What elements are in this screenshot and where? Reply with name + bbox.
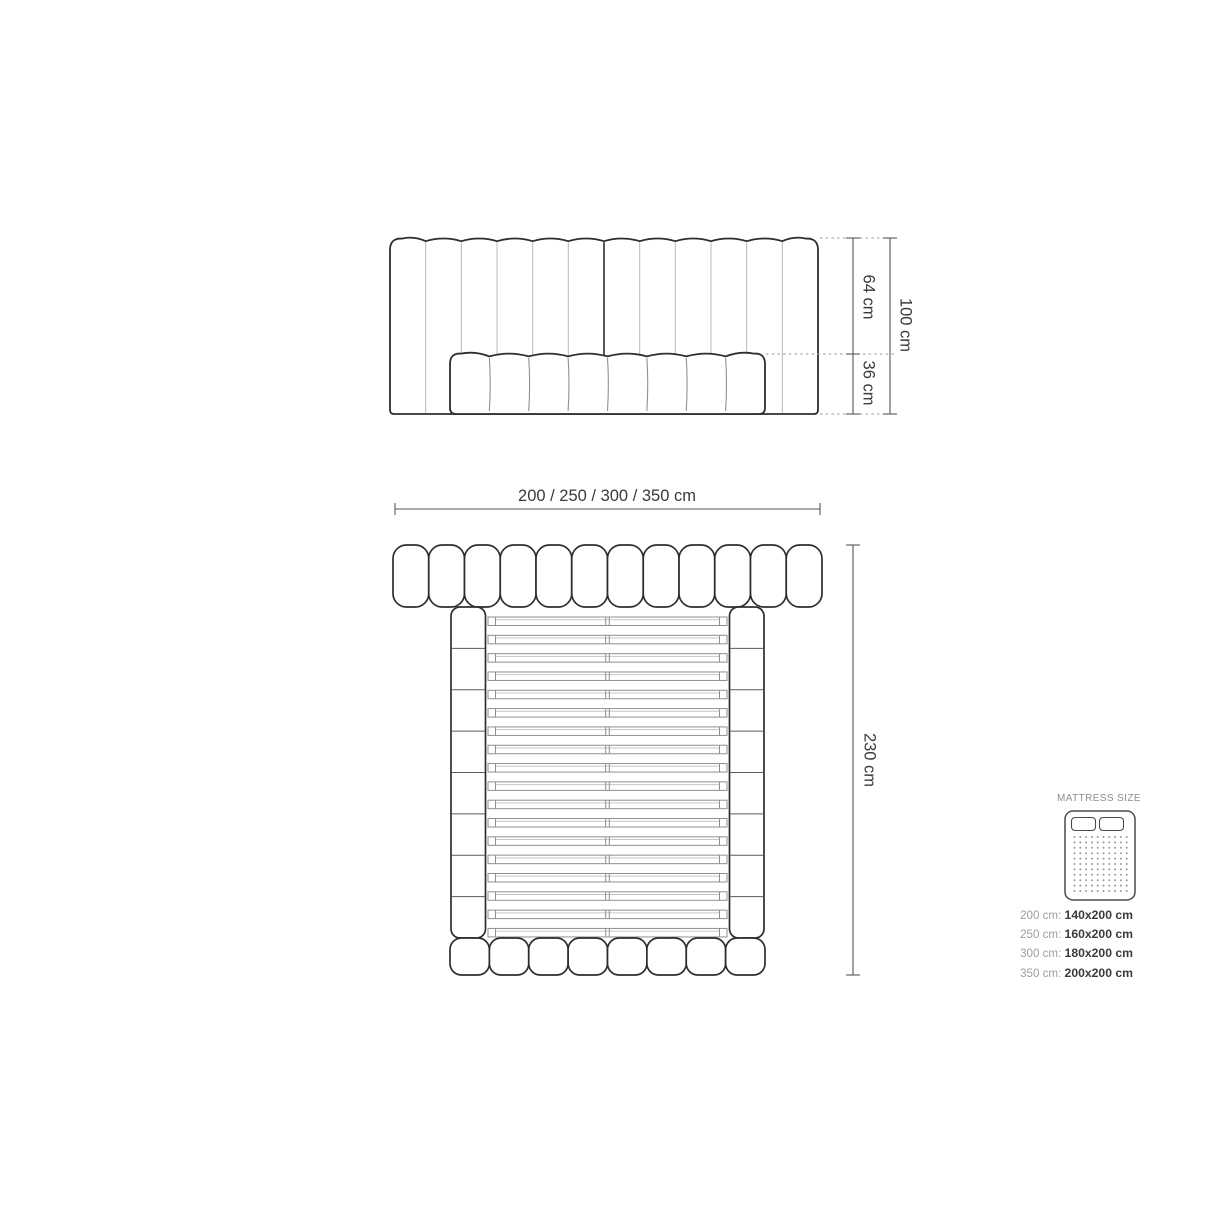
mattress-dot: [1103, 847, 1105, 849]
mattress-dot: [1074, 852, 1076, 854]
mattress-dot: [1091, 890, 1093, 892]
pillow-right: [1100, 818, 1124, 831]
slat: [488, 635, 727, 644]
mattress-dot: [1085, 868, 1087, 870]
mattress-dot: [1114, 836, 1116, 838]
mattress-dot: [1126, 863, 1128, 865]
slat: [488, 782, 727, 791]
footboard-pill: [726, 938, 765, 975]
footboard-pill: [568, 938, 607, 975]
mattress-dot: [1108, 847, 1110, 849]
mattress-dot: [1120, 841, 1122, 843]
mattress-dot: [1085, 852, 1087, 854]
headboard-pill: [465, 545, 501, 607]
mattress-dot: [1097, 841, 1099, 843]
mattress-dot: [1085, 858, 1087, 860]
bed-dimension-diagram: 64 cm 36 cm 100 cm 200 / 250 / 300 / 350…: [0, 0, 1214, 1214]
mattress-dot: [1114, 847, 1116, 849]
mattress-dot: [1097, 847, 1099, 849]
mattress-dot: [1074, 841, 1076, 843]
mattress-dot: [1108, 868, 1110, 870]
mattress-dot: [1074, 858, 1076, 860]
mattress-dot: [1074, 847, 1076, 849]
slat: [488, 727, 727, 736]
mattress-size-title: MATTRESS SIZE: [1038, 793, 1160, 804]
mattress-dot: [1079, 885, 1081, 887]
mattress-dot: [1079, 863, 1081, 865]
dim-label-width: 200 / 250 / 300 / 350 cm: [518, 487, 696, 505]
mattress-dot: [1074, 885, 1076, 887]
mattress-dot: [1074, 836, 1076, 838]
headboard-pill: [715, 545, 751, 607]
mattress-size-row: 350 cm: 200x200 cm: [1020, 964, 1133, 983]
mattress-dot: [1091, 858, 1093, 860]
mattress-dot: [1074, 868, 1076, 870]
headboard-plan: [393, 545, 822, 607]
mattress-dot: [1120, 836, 1122, 838]
mattress-dot: [1114, 863, 1116, 865]
mattress-dot: [1097, 879, 1099, 881]
mattress-dot: [1126, 868, 1128, 870]
mattress-dot: [1091, 868, 1093, 870]
mattress-dot: [1103, 868, 1105, 870]
mattress-dot: [1103, 863, 1105, 865]
mattress-dot: [1079, 836, 1081, 838]
mattress-dot: [1126, 841, 1128, 843]
front-view: 64 cm 36 cm 100 cm: [390, 238, 915, 414]
slat: [488, 819, 727, 828]
headboard-pill: [429, 545, 465, 607]
mattress-dot: [1126, 890, 1128, 892]
headboard-pill: [536, 545, 572, 607]
mattress-dot: [1097, 868, 1099, 870]
mattress-dot: [1103, 858, 1105, 860]
mattress-dot: [1085, 841, 1087, 843]
mattress-dot: [1085, 879, 1087, 881]
slat: [488, 690, 727, 699]
mattress-size-row: 300 cm: 180x200 cm: [1020, 944, 1133, 963]
slat: [488, 672, 727, 681]
mattress-size-row: 200 cm: 140x200 cm: [1020, 906, 1133, 925]
mattress-dot: [1108, 874, 1110, 876]
mattress-dot: [1091, 841, 1093, 843]
mattress-dot: [1079, 852, 1081, 854]
headboard-pill: [643, 545, 679, 607]
mattress-dot: [1114, 852, 1116, 854]
dim-label-64cm: 64 cm: [860, 275, 878, 320]
mattress-dot: [1103, 890, 1105, 892]
footboard-pill: [529, 938, 568, 975]
slat: [488, 837, 727, 846]
slat: [488, 764, 727, 773]
dim-label-100cm: 100 cm: [897, 298, 915, 352]
mattress-dot: [1108, 852, 1110, 854]
mattress-dot: [1114, 890, 1116, 892]
footboard-pill: [489, 938, 528, 975]
mattress-dot: [1120, 863, 1122, 865]
mattress-dot: [1079, 890, 1081, 892]
mattress-dot: [1074, 863, 1076, 865]
slats: [488, 617, 727, 937]
mattress-dot: [1114, 858, 1116, 860]
headboard-pill: [500, 545, 536, 607]
mattress-dot: [1074, 890, 1076, 892]
slat: [488, 928, 727, 937]
footboard-plan: [450, 938, 765, 975]
mattress-dot: [1097, 858, 1099, 860]
mattress-dot: [1126, 874, 1128, 876]
mattress-dot: [1108, 863, 1110, 865]
slat: [488, 892, 727, 901]
mattress-dot: [1126, 879, 1128, 881]
frame-width-label: 350 cm:: [1020, 967, 1061, 980]
mattress-dot: [1120, 868, 1122, 870]
top-view: 200 / 250 / 300 / 350 cm 230 cm: [393, 487, 879, 975]
mattress-size-value: 180x200 cm: [1065, 946, 1133, 960]
mattress-dot: [1085, 847, 1087, 849]
mattress-dot: [1126, 858, 1128, 860]
mattress-size-value: 160x200 cm: [1065, 927, 1133, 941]
headboard-pill: [786, 545, 822, 607]
mattress-dot: [1114, 868, 1116, 870]
headboard-pill: [572, 545, 608, 607]
mattress-dot: [1114, 841, 1116, 843]
mattress-dot: [1097, 852, 1099, 854]
mattress-dot: [1097, 863, 1099, 865]
mattress-dot: [1114, 874, 1116, 876]
footboard-pill: [686, 938, 725, 975]
mattress-dot: [1126, 852, 1128, 854]
frame-width-label: 200 cm:: [1020, 909, 1061, 922]
slat: [488, 617, 727, 626]
mattress-dot: [1091, 874, 1093, 876]
mattress-dot: [1120, 885, 1122, 887]
bed-base-front: [450, 353, 765, 414]
mattress-dot: [1108, 890, 1110, 892]
slat: [488, 745, 727, 754]
mattress-dot: [1074, 874, 1076, 876]
mattress-dot: [1103, 836, 1105, 838]
headboard-pill: [608, 545, 644, 607]
mattress-dot: [1079, 858, 1081, 860]
mattress-dot: [1120, 852, 1122, 854]
frame-width-label: 300 cm:: [1020, 947, 1061, 960]
mattress-dot: [1097, 885, 1099, 887]
mattress-size-list: 200 cm: 140x200 cm 250 cm: 160x200 cm 30…: [1020, 906, 1133, 983]
mattress-dot: [1103, 852, 1105, 854]
footboard-pill: [450, 938, 489, 975]
mattress-dot: [1108, 841, 1110, 843]
dim-label-230cm: 230 cm: [861, 733, 879, 787]
pillow-left: [1072, 818, 1096, 831]
slat: [488, 654, 727, 663]
slat: [488, 873, 727, 882]
mattress-dot: [1091, 852, 1093, 854]
mattress-size-value: 140x200 cm: [1065, 908, 1133, 922]
mattress-dot: [1114, 879, 1116, 881]
mattress-dot: [1097, 890, 1099, 892]
mattress-dot: [1103, 874, 1105, 876]
mattress-icon: [1065, 811, 1135, 900]
diagram-drawing: 64 cm 36 cm 100 cm 200 / 250 / 300 / 350…: [0, 0, 1214, 1214]
mattress-dot: [1126, 885, 1128, 887]
footboard-pill: [647, 938, 686, 975]
mattress-dot: [1103, 879, 1105, 881]
mattress-size-value: 200x200 cm: [1065, 966, 1133, 980]
mattress-dot: [1108, 879, 1110, 881]
mattress-dot: [1103, 841, 1105, 843]
dim-label-36cm: 36 cm: [860, 361, 878, 406]
mattress-dot: [1079, 874, 1081, 876]
mattress-dot: [1085, 836, 1087, 838]
mattress-dot: [1114, 885, 1116, 887]
slat: [488, 709, 727, 718]
headboard-pill: [393, 545, 429, 607]
mattress-dot: [1091, 836, 1093, 838]
mattress-dot: [1074, 879, 1076, 881]
mattress-dot: [1126, 836, 1128, 838]
mattress-size-row: 250 cm: 160x200 cm: [1020, 925, 1133, 944]
headboard-pill: [679, 545, 715, 607]
mattress-dot: [1126, 847, 1128, 849]
mattress-dot: [1079, 847, 1081, 849]
mattress-dot: [1079, 879, 1081, 881]
mattress-dot: [1091, 847, 1093, 849]
slat: [488, 855, 727, 864]
mattress-dot: [1079, 841, 1081, 843]
mattress-dot: [1085, 885, 1087, 887]
mattress-dot: [1120, 847, 1122, 849]
headboard-pill: [751, 545, 787, 607]
mattress-dot: [1097, 836, 1099, 838]
mattress-dot: [1079, 868, 1081, 870]
mattress-dot: [1120, 858, 1122, 860]
mattress-dot: [1085, 863, 1087, 865]
mattress-dot: [1103, 885, 1105, 887]
mattress-dot: [1085, 890, 1087, 892]
mattress-dot: [1120, 874, 1122, 876]
footboard-pill: [608, 938, 647, 975]
mattress-dot: [1091, 863, 1093, 865]
mattress-dot: [1108, 885, 1110, 887]
mattress-dot: [1085, 874, 1087, 876]
mattress-dot: [1120, 890, 1122, 892]
mattress-dot: [1091, 885, 1093, 887]
mattress-dot: [1120, 879, 1122, 881]
slat: [488, 910, 727, 919]
frame-width-label: 250 cm:: [1020, 928, 1061, 941]
mattress-dot: [1108, 858, 1110, 860]
length-dimension: [846, 545, 860, 975]
mattress-dot: [1097, 874, 1099, 876]
mattress-dot: [1108, 836, 1110, 838]
mattress-dot: [1091, 879, 1093, 881]
slat: [488, 800, 727, 809]
